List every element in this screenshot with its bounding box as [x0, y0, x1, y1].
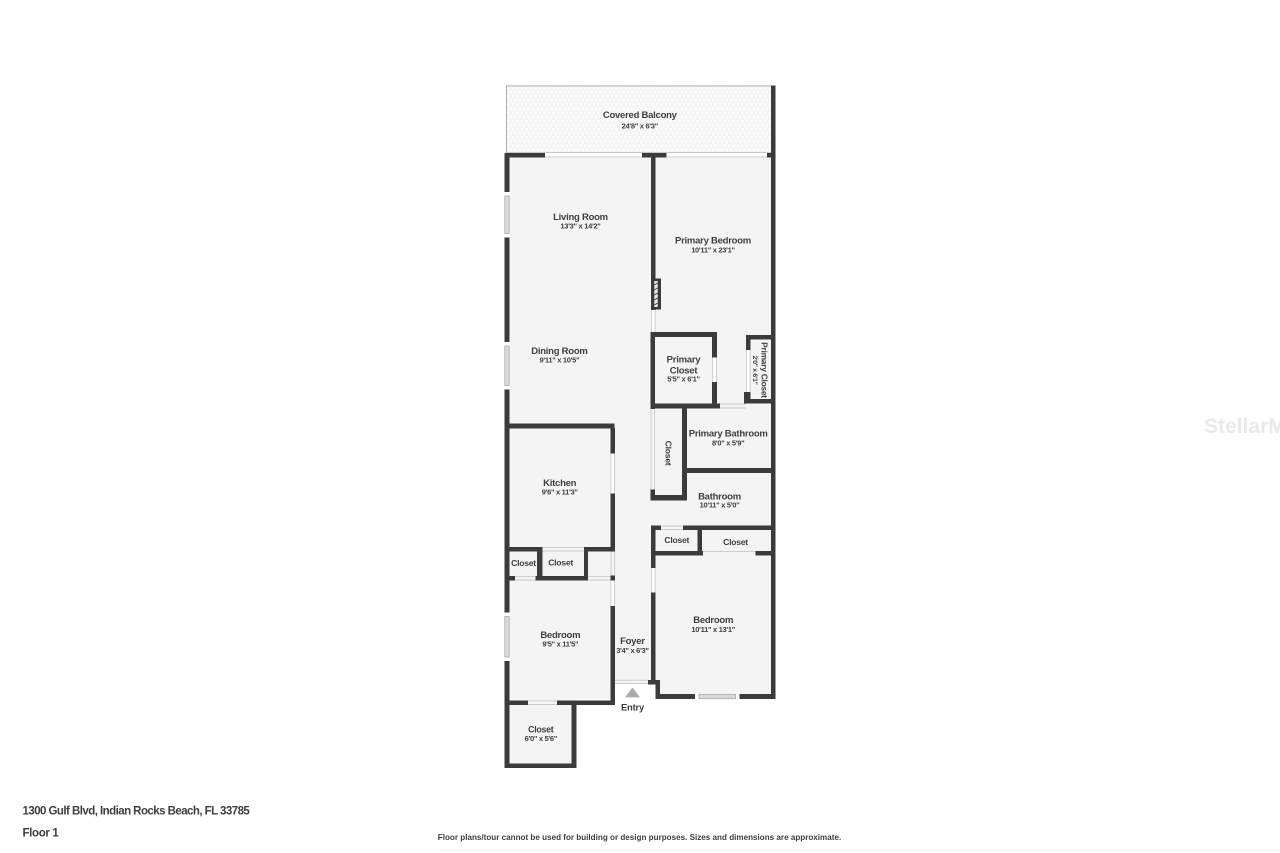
- svg-text:Floor plans/tour cannot be use: Floor plans/tour cannot be used for buil…: [438, 833, 841, 842]
- svg-text:2'0" x 6'1": 2'0" x 6'1": [751, 355, 758, 384]
- svg-text:9'6" x 11'3": 9'6" x 11'3": [542, 488, 579, 497]
- svg-text:Closet: Closet: [548, 557, 573, 567]
- svg-text:Entry: Entry: [621, 702, 645, 713]
- svg-text:10'11" x 5'0": 10'11" x 5'0": [700, 500, 740, 509]
- svg-text:Closet: Closet: [664, 441, 674, 466]
- svg-text:Primary: Primary: [667, 355, 702, 366]
- svg-text:Closet: Closet: [511, 558, 536, 568]
- svg-text:9'11" x 10'5": 9'11" x 10'5": [540, 356, 580, 365]
- svg-text:Closet: Closet: [664, 535, 689, 545]
- svg-text:Closet: Closet: [528, 724, 554, 734]
- svg-text:13'3" x 14'2": 13'3" x 14'2": [560, 222, 601, 231]
- svg-text:8'0" x 5'9": 8'0" x 5'9": [712, 439, 745, 448]
- svg-text:Primary Closet: Primary Closet: [760, 342, 770, 398]
- svg-text:6'0" x 5'6": 6'0" x 5'6": [525, 734, 558, 743]
- svg-text:StellarMLS: StellarMLS: [1204, 415, 1280, 438]
- svg-text:24'8" x 6'3": 24'8" x 6'3": [622, 121, 659, 130]
- svg-text:1300 Gulf Blvd, Indian Rocks B: 1300 Gulf Blvd, Indian Rocks Beach, FL 3…: [23, 806, 251, 818]
- svg-text:Closet: Closet: [723, 537, 748, 547]
- svg-text:9'5" x 11'5": 9'5" x 11'5": [542, 639, 579, 648]
- svg-text:3'4" x 6'3": 3'4" x 6'3": [616, 646, 649, 655]
- svg-text:Floor 1: Floor 1: [23, 827, 60, 839]
- svg-text:Covered Balcony: Covered Balcony: [603, 110, 678, 121]
- svg-text:10'11" x 23'1": 10'11" x 23'1": [691, 245, 735, 254]
- svg-text:5'5" x 6'1": 5'5" x 6'1": [667, 374, 700, 383]
- svg-text:10'11" x 13'1": 10'11" x 13'1": [691, 625, 735, 634]
